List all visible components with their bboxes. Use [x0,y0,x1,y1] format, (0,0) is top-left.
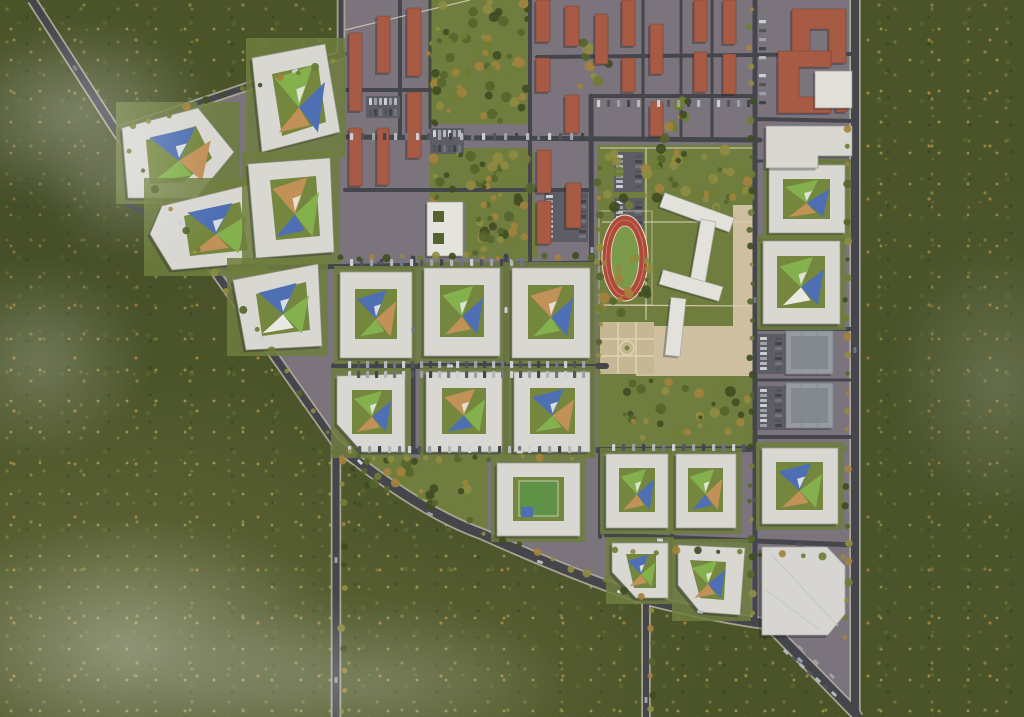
tree [468,7,477,16]
parked-car [632,444,635,451]
street-tree [747,298,753,304]
red-townhouse [407,8,421,76]
street-tree [845,391,849,395]
parked-car [707,100,710,107]
tree [520,201,528,209]
parked-car [546,371,549,378]
car [645,697,648,703]
parked-car [759,101,766,104]
parked-car [400,259,403,266]
street-tree [845,540,853,548]
car [854,117,857,123]
street-tree [516,542,522,548]
parked-car [433,130,436,137]
parked-car [470,259,473,266]
car [854,347,857,353]
street-tree [650,640,655,645]
tree [668,177,673,182]
street-tree [255,327,260,332]
parked-car [760,342,767,345]
parked-car [775,414,782,417]
tree [708,174,718,184]
parked-car [657,100,660,107]
street-tree [340,645,347,652]
tree [615,265,622,272]
parked-car [438,446,441,453]
parked-car [775,409,782,412]
parked-car [448,446,451,453]
car [697,610,703,614]
parked-car [622,444,625,451]
street-tree [845,524,850,529]
se-retail-building [762,547,845,635]
tree [435,177,445,187]
car [505,307,508,313]
parked-car [775,389,782,392]
tree [452,68,460,76]
street-tree [167,113,172,118]
street-tree [596,211,603,218]
parked-car [408,446,411,453]
car [854,537,857,543]
street-tree [747,535,755,543]
tree [481,34,486,39]
red-townhouse [650,102,663,136]
street-tree [496,256,500,260]
car [657,538,663,541]
tree [614,273,622,281]
street-tree [749,371,756,378]
street-tree [758,553,762,557]
tree [472,250,478,256]
parked-car [537,133,540,140]
tree [425,490,434,499]
parked-car [581,133,584,140]
parked-car [478,446,481,453]
red-townhouse [536,58,550,92]
red-townhouse [536,0,550,42]
street-tree [555,255,561,261]
tree [639,435,645,441]
street-tree [342,522,346,526]
street-tree [749,553,756,560]
tree [682,385,689,392]
parked-car [570,133,573,140]
parked-car [759,83,766,86]
parked-car [548,446,551,453]
parked-car [537,361,540,368]
street-tree [472,455,477,460]
parked-car [402,361,405,368]
parked-car [429,371,432,378]
parked-car [379,109,382,116]
red-townhouse [694,52,707,92]
tree [720,406,730,416]
parked-car [687,100,690,107]
parked-car [759,20,766,23]
tree [708,188,717,197]
tree [518,29,525,36]
parked-car [548,133,551,140]
street-tree [202,96,210,104]
tree [625,201,633,209]
street-tree [342,688,347,693]
parked-car [635,155,642,158]
street-tree [841,554,846,559]
tree [485,81,495,91]
tree [641,168,652,179]
parked-car [775,394,782,397]
street-tree [481,532,485,536]
courtyard-sports-court [521,507,533,517]
parked-car [564,371,567,378]
tree [482,50,488,56]
tree [443,29,449,35]
parked-car [480,259,483,266]
street-tree [284,369,289,374]
red-townhouse [407,92,421,158]
tree [459,31,467,39]
car [591,247,594,253]
tree [679,111,687,119]
tree [519,93,527,101]
tree [524,16,530,22]
tree [518,104,526,112]
street-tree [534,548,542,556]
parked-car [447,371,450,378]
parked-car [652,444,655,451]
tree [479,231,490,242]
tree [503,70,507,74]
street-tree [750,611,755,616]
parked-car [450,259,453,266]
street-tree [747,227,753,233]
parked-car [760,424,767,427]
street-tree [524,256,529,261]
parked-car [492,371,495,378]
parked-car [635,175,642,178]
tree [504,211,514,221]
street-tree [400,254,404,258]
parked-car [350,133,353,140]
parked-car [383,133,386,140]
tree [609,202,620,213]
parked-car [482,133,485,140]
street-tree [843,615,848,620]
street-tree [596,339,602,345]
parked-car [635,160,642,163]
street-tree [648,658,656,666]
tree [487,109,497,119]
parked-car [582,371,585,378]
street-tree [597,370,601,374]
street-tree [553,457,559,463]
street-tree [749,155,753,159]
street-tree [598,322,603,327]
street-tree [844,598,849,603]
parked-car [402,371,405,378]
tree [449,186,456,193]
tree [476,217,481,222]
parked-car [490,259,493,266]
street-tree [845,237,853,245]
street-tree [595,227,600,232]
parked-car [393,361,396,368]
parked-car [528,371,531,378]
street-tree [582,569,590,577]
red-townhouse [377,16,390,73]
tree [643,258,649,264]
parked-car [732,444,735,451]
parked-car [394,133,397,140]
tree [475,62,484,71]
tree [632,380,636,384]
street-tree [486,457,491,462]
parked-car [759,29,766,32]
parked-car [474,361,477,368]
tree [480,112,487,119]
tree [657,420,664,427]
tree [473,45,483,55]
tree [482,4,492,14]
tree [507,177,513,183]
parked-car [558,446,561,453]
tree [579,38,588,47]
parked-car [428,446,431,453]
street-tree [747,135,754,142]
car [335,557,338,563]
street-tree [141,168,145,172]
tree [601,261,606,266]
street-tree [419,489,424,494]
garage-roof-panels [791,336,828,369]
parked-car [348,361,351,368]
parked-car [427,133,430,140]
parked-car [378,446,381,453]
garden-fountain-center [625,346,630,351]
parked-car [712,444,715,451]
masterplan-render [0,0,1024,717]
street-tree [311,409,316,414]
parked-car [635,206,642,209]
street-tree [196,247,201,252]
street-tree [596,244,604,252]
parked-car [775,367,782,370]
street-tree [130,123,136,129]
red-townhouse [694,0,707,42]
parked-car [458,145,461,152]
parked-car [460,133,463,140]
parked-car [742,444,745,451]
street-tree [843,483,850,490]
tree [623,388,631,396]
tree [643,418,649,424]
street-tree [369,254,375,260]
street-tree [455,454,459,458]
parked-car [438,361,441,368]
parked-car [374,109,377,116]
tree [701,154,707,160]
street-tree [750,336,755,341]
parked-car [348,371,351,378]
tree [617,297,623,303]
street-tree [596,304,604,312]
street-tree [842,502,849,509]
kindergarten-courtyard [433,211,444,222]
tree [431,193,436,198]
tree [649,379,654,384]
tree [498,193,503,198]
street-tree [747,499,752,504]
tree [458,488,464,494]
street-tree [654,550,659,555]
tree [493,51,502,60]
parked-car [555,371,558,378]
tree [612,156,622,166]
parked-car [501,361,504,368]
parked-car [519,361,522,368]
street-tree [603,579,607,583]
parked-car [760,404,767,407]
street-tree [463,252,469,258]
tree [432,86,441,95]
street-tree [452,508,457,513]
tree [717,167,722,172]
street-tree [750,318,755,323]
street-tree [801,553,806,558]
street-tree [845,144,850,149]
street-tree [845,257,849,261]
street-tree [588,254,596,262]
parked-car [456,371,459,378]
street-tree [341,562,346,567]
parked-car [366,371,369,378]
tree [498,16,508,26]
street-tree [520,454,524,458]
street-tree [339,457,346,464]
parked-car [374,98,377,105]
car [797,543,803,546]
tree [479,170,486,177]
street-tree [331,58,336,63]
parked-car [528,446,531,453]
street-tree [511,255,516,260]
kindergarten-building [427,202,463,256]
parked-car [369,109,372,116]
parked-car [647,100,650,107]
parked-car [394,109,397,116]
street-tree [748,443,754,449]
parked-car [500,259,503,266]
tree [698,423,703,428]
red-townhouse [537,150,551,193]
street-tree [240,86,245,91]
tree [480,246,487,253]
street-tree [843,180,851,188]
parked-car [440,259,443,266]
street-tree [750,393,755,398]
street-tree [338,254,344,260]
parked-car [662,444,665,451]
parked-car [388,446,391,453]
parked-car [775,342,782,345]
street-tree [423,455,428,460]
tree [616,308,625,317]
parked-car [384,361,387,368]
tree [521,233,528,240]
street-tree [570,456,574,460]
tree [479,161,485,167]
tree [695,191,704,200]
tree [369,479,379,489]
street-tree [276,74,283,81]
parked-car [420,361,423,368]
street-tree [435,456,443,464]
parked-car [538,446,541,453]
tree [489,222,497,230]
parked-car [616,185,623,188]
street-tree [221,93,225,97]
east-boundary-road [855,0,858,717]
parked-car [607,100,610,107]
street-tree [168,207,173,212]
street-tree [843,635,847,639]
tree [673,149,679,155]
street-tree [348,449,353,454]
tree [656,144,666,154]
tree [714,206,719,211]
parked-car [438,133,441,140]
street-tree [340,499,347,506]
tree [619,193,629,203]
street-tree [694,546,702,554]
street-tree [845,202,850,207]
street-tree [846,372,850,376]
parked-car [759,38,766,41]
street-tree [223,288,229,294]
tree [709,408,719,418]
tree [431,69,440,78]
street-ne-y118 [755,119,855,121]
tree [480,201,487,208]
garage-roof-panels [791,388,828,423]
tree [669,161,678,170]
parked-car [448,145,451,152]
street-tree [342,668,348,674]
street-tree [239,306,247,314]
parked-car [526,133,529,140]
parked-car [430,259,433,266]
parked-car [384,109,387,116]
street-tree [638,593,645,600]
tree [520,154,530,164]
tree [436,26,440,30]
red-townhouse [622,58,635,92]
street-tree [750,7,755,12]
tree [445,53,454,62]
parked-car [369,98,372,105]
parked-car [410,259,413,266]
parked-car [453,130,456,137]
street-tree [748,484,752,488]
parked-car [393,371,396,378]
tree [501,51,508,58]
parked-car [717,100,720,107]
street-tree [845,578,853,586]
street-tree [746,355,753,362]
parked-car [546,361,549,368]
tree [462,68,472,78]
